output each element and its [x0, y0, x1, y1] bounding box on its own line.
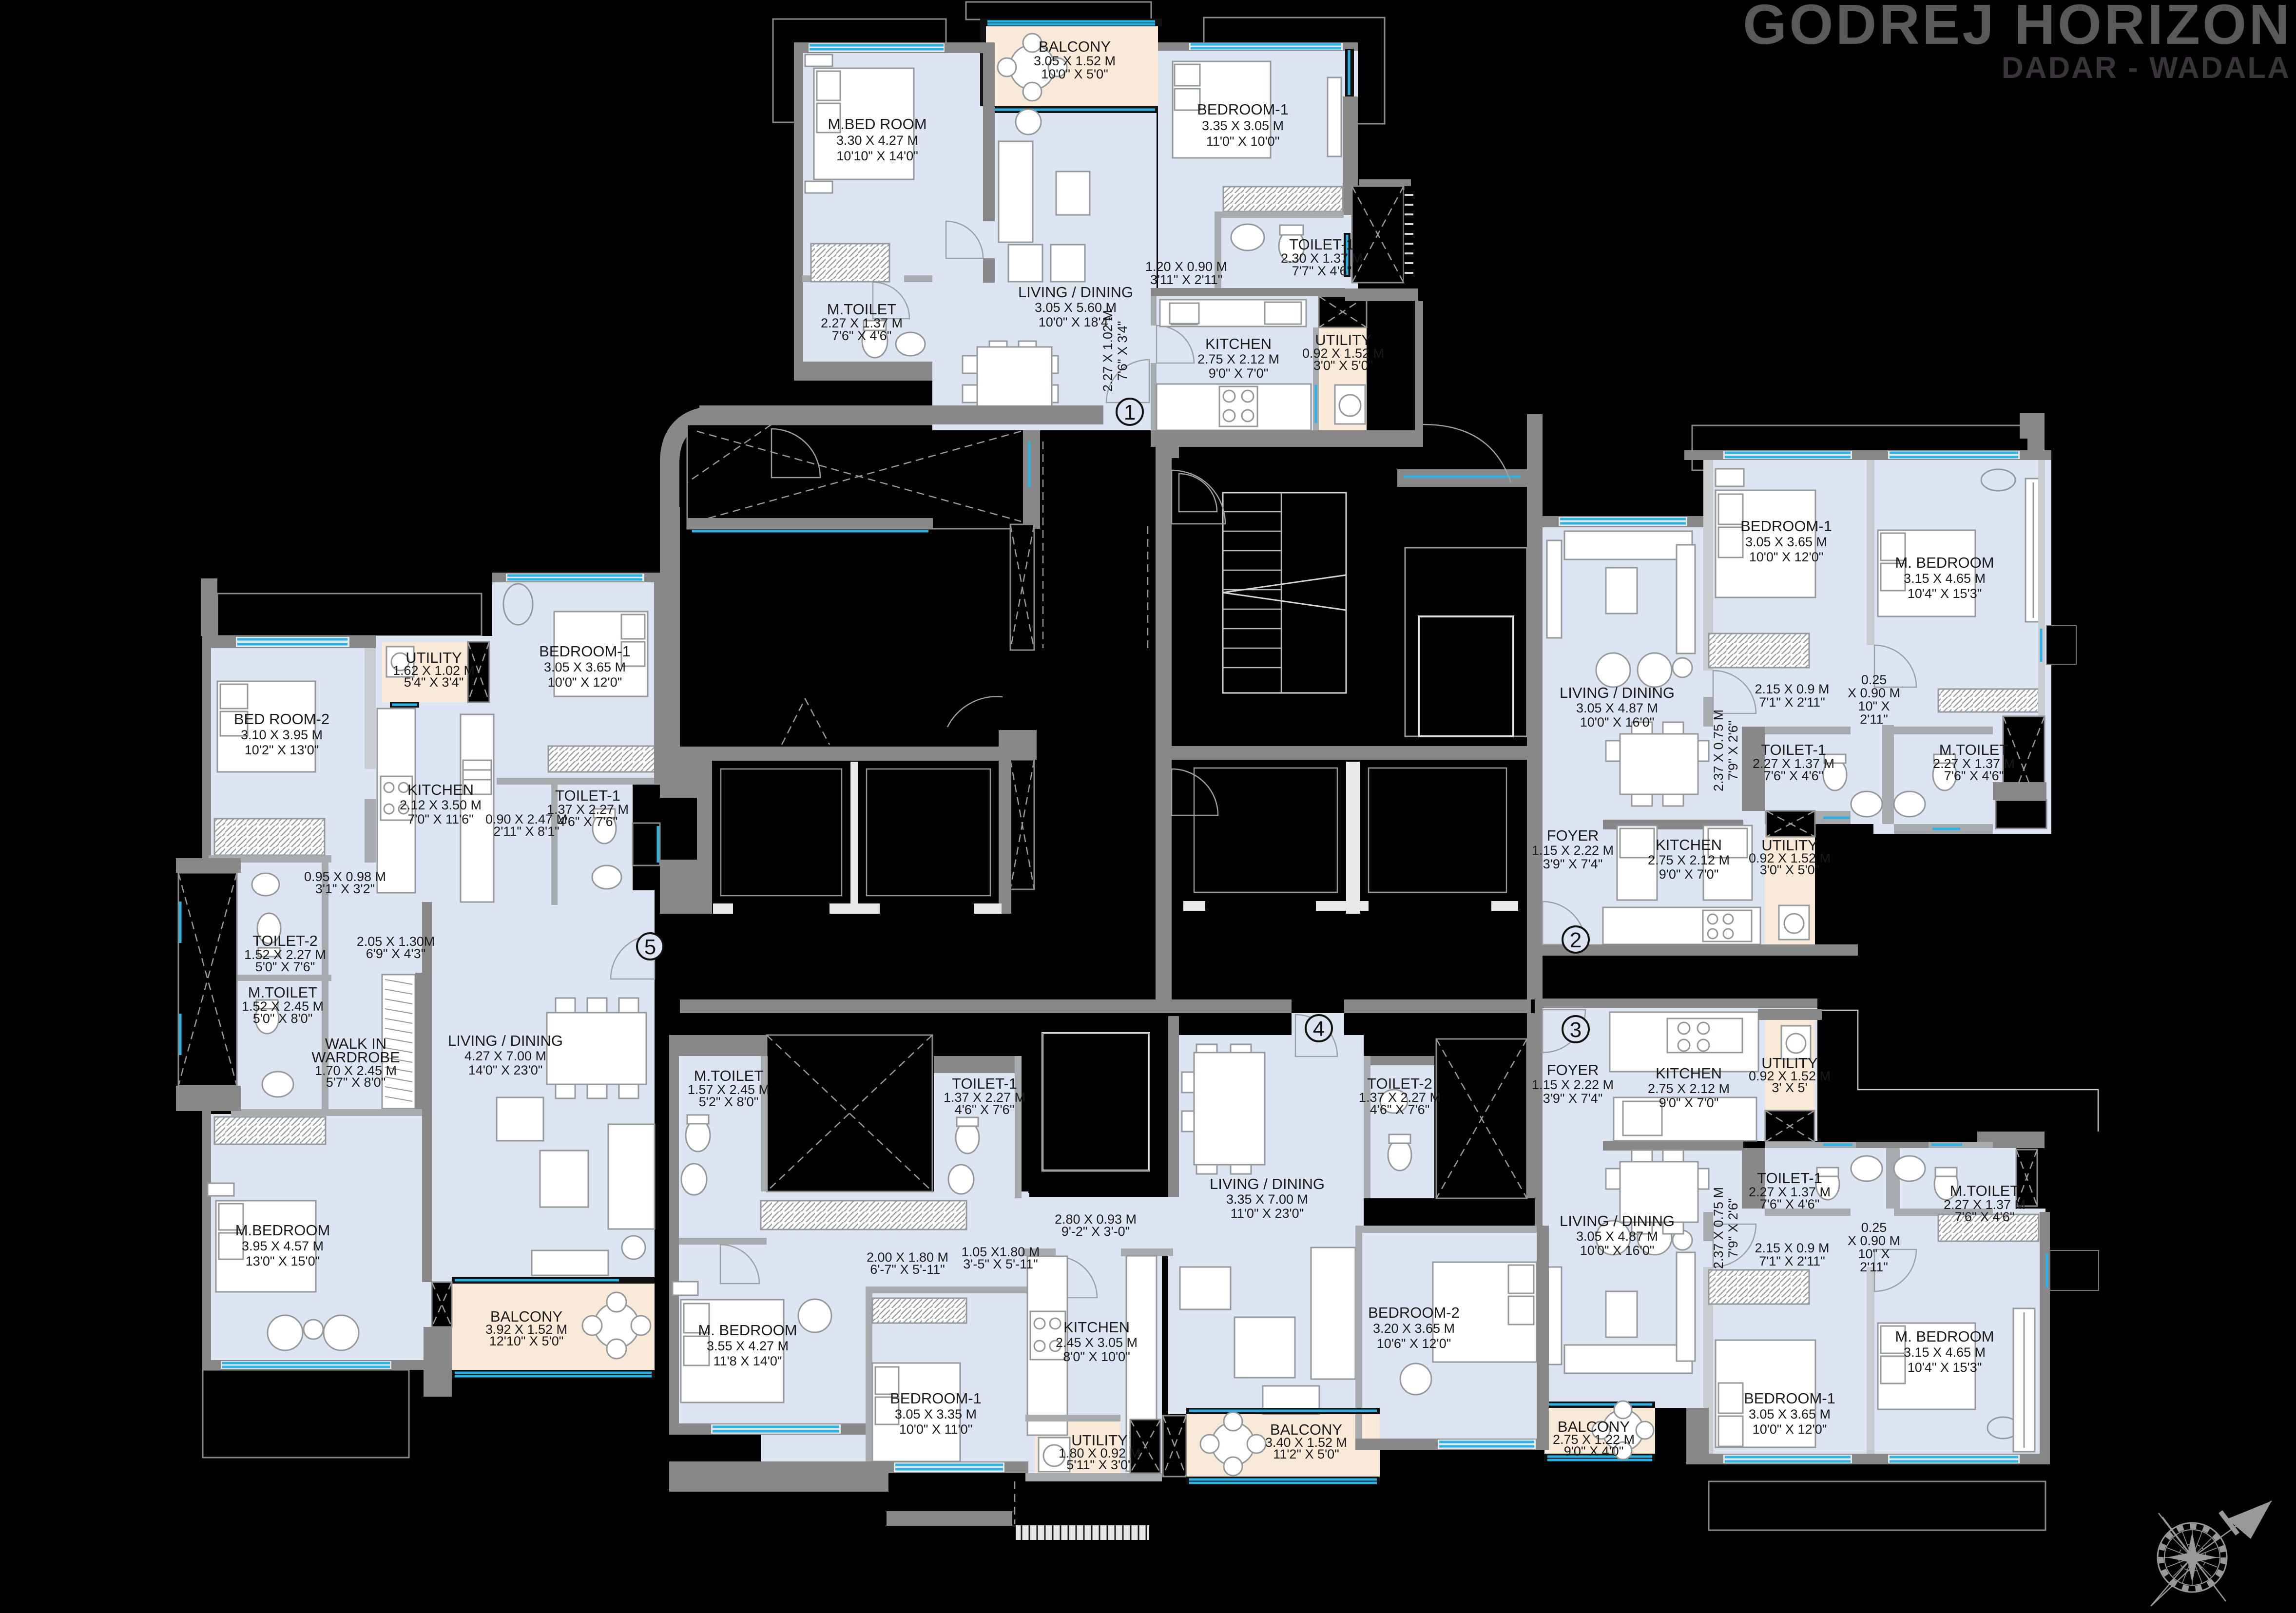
svg-text:M.TOILET: M.TOILET	[1939, 741, 2008, 758]
svg-text:0.25: 0.25	[1861, 672, 1887, 687]
svg-text:10'0" X 16'0": 10'0" X 16'0"	[1580, 1243, 1655, 1258]
svg-text:7'6" X 4'6": 7'6" X 4'6"	[1764, 768, 1824, 783]
svg-text:5'7" X 8'0": 5'7" X 8'0"	[326, 1075, 386, 1090]
svg-text:3'-5" X 5'-11": 3'-5" X 5'-11"	[963, 1257, 1038, 1271]
svg-text:GODREJ HORIZON: GODREJ HORIZON	[1743, 0, 2292, 56]
svg-text:10" X: 10" X	[1858, 1247, 1890, 1261]
svg-text:TOILET-2: TOILET-2	[1367, 1075, 1432, 1092]
svg-text:1: 1	[1124, 401, 1136, 424]
svg-text:2.45 X 3.05 M: 2.45 X 3.05 M	[1056, 1335, 1138, 1350]
svg-text:DADAR - WADALA: DADAR - WADALA	[2002, 51, 2291, 85]
svg-text:7'1" X 2'11": 7'1" X 2'11"	[1759, 695, 1825, 710]
svg-text:10'0" X 12'0": 10'0" X 12'0"	[1749, 550, 1824, 564]
svg-text:M. BEDROOM: M. BEDROOM	[698, 1322, 797, 1339]
svg-text:3.30 X 4.27 M: 3.30 X 4.27 M	[836, 133, 918, 148]
svg-text:M.TOILET: M.TOILET	[1950, 1182, 2019, 1199]
svg-text:X 0.90 M: X 0.90 M	[1848, 686, 1900, 700]
svg-text:BEDROOM-1: BEDROOM-1	[890, 1390, 982, 1407]
svg-text:13'0" X 15'0": 13'0" X 15'0"	[246, 1254, 320, 1268]
svg-text:3'0" X 5'0": 3'0" X 5'0"	[1760, 863, 1820, 877]
svg-text:3.05 X 4.87 M: 3.05 X 4.87 M	[1576, 1229, 1658, 1244]
svg-text:KITCHEN: KITCHEN	[407, 781, 474, 798]
svg-text:11'0" X 10'0": 11'0" X 10'0"	[1206, 134, 1280, 149]
svg-text:KITCHEN: KITCHEN	[1656, 1065, 1722, 1082]
svg-text:9'0" X 7'0": 9'0" X 7'0"	[1659, 867, 1719, 882]
svg-text:9'0" X 7'0": 9'0" X 7'0"	[1209, 366, 1269, 381]
svg-text:5'4" X 3'4": 5'4" X 3'4"	[404, 675, 464, 690]
svg-text:5: 5	[644, 935, 656, 959]
svg-text:4'6" X 7'6": 4'6" X 7'6"	[1370, 1102, 1430, 1117]
svg-text:BEDROOM-1: BEDROOM-1	[539, 643, 631, 660]
svg-text:9'-2" X 3'-0": 9'-2" X 3'-0"	[1061, 1224, 1130, 1239]
svg-text:2.75 X 2.12 M: 2.75 X 2.12 M	[1197, 352, 1279, 366]
svg-text:LIVING / DINING: LIVING / DINING	[1018, 284, 1133, 301]
svg-text:6'9" X 4'3": 6'9" X 4'3"	[366, 946, 426, 961]
svg-text:7'7" X 4'6": 7'7" X 4'6"	[1292, 264, 1352, 278]
svg-text:BEDROOM-1: BEDROOM-1	[1197, 101, 1289, 118]
svg-text:TOILET-2: TOILET-2	[252, 932, 318, 949]
svg-text:9'0" X 7'0": 9'0" X 7'0"	[1659, 1095, 1719, 1110]
svg-text:BALCONY: BALCONY	[1039, 38, 1111, 55]
svg-text:7'6" X 4'6": 7'6" X 4'6"	[1760, 1197, 1820, 1211]
svg-text:3'0" X 5'0": 3'0" X 5'0"	[1313, 358, 1373, 373]
svg-text:7'9" X 2'6": 7'9" X 2'6"	[1726, 721, 1740, 781]
svg-text:7'9" X 2'6": 7'9" X 2'6"	[1726, 1198, 1740, 1258]
svg-text:11'0" X 23'0": 11'0" X 23'0"	[1231, 1206, 1304, 1221]
svg-text:3.95 X 4.57 M: 3.95 X 4.57 M	[242, 1239, 324, 1253]
svg-text:10'0" X 11'0": 10'0" X 11'0"	[899, 1422, 973, 1437]
svg-text:3.15 X 4.65 M: 3.15 X 4.65 M	[1904, 571, 1986, 586]
svg-text:7'6" X 3'4": 7'6" X 3'4"	[1115, 321, 1130, 381]
svg-text:3.55 X 4.27 M: 3.55 X 4.27 M	[707, 1339, 789, 1353]
svg-text:10'0" X 5'0": 10'0" X 5'0"	[1041, 67, 1108, 81]
svg-text:4: 4	[1313, 1017, 1325, 1041]
svg-text:5'11" X 3'0": 5'11" X 3'0"	[1066, 1458, 1133, 1472]
svg-text:2.15 X 0.9 M: 2.15 X 0.9 M	[1755, 1241, 1829, 1255]
svg-text:3.20 X 3.65 M: 3.20 X 3.65 M	[1373, 1321, 1455, 1336]
svg-text:2.37 X 0.75 M: 2.37 X 0.75 M	[1711, 1187, 1726, 1269]
svg-text:3.05 X 3.65 M: 3.05 X 3.65 M	[1745, 535, 1827, 549]
svg-text:5'2" X 8'0": 5'2" X 8'0"	[699, 1095, 759, 1109]
svg-text:BEDROOM-1: BEDROOM-1	[1740, 518, 1832, 535]
svg-text:14'0" X 23'0": 14'0" X 23'0"	[468, 1063, 543, 1077]
svg-text:3: 3	[1570, 1018, 1582, 1042]
svg-text:5'0" X 7'6": 5'0" X 7'6"	[255, 960, 315, 974]
svg-text:1.20 X 0.90 M: 1.20 X 0.90 M	[1145, 259, 1227, 274]
svg-text:FOYER: FOYER	[1547, 1061, 1599, 1078]
svg-text:9'0" X 4'0": 9'0" X 4'0"	[1564, 1444, 1624, 1459]
svg-text:2.15 X 0.9 M: 2.15 X 0.9 M	[1755, 682, 1829, 696]
svg-text:3'1" X 3'2": 3'1" X 3'2"	[315, 882, 375, 896]
svg-text:M. BEDROOM: M. BEDROOM	[1895, 1328, 1994, 1345]
svg-text:2.75 X 2.12 M: 2.75 X 2.12 M	[1648, 853, 1730, 867]
svg-text:KITCHEN: KITCHEN	[1063, 1319, 1130, 1336]
svg-text:LIVING / DINING: LIVING / DINING	[1210, 1175, 1325, 1192]
svg-text:0.25: 0.25	[1861, 1220, 1887, 1235]
svg-text:10" X: 10" X	[1858, 699, 1890, 713]
svg-text:3' X 5': 3' X 5'	[1772, 1080, 1807, 1095]
svg-text:TOILET-1: TOILET-1	[1761, 741, 1826, 758]
svg-text:3.15 X 4.65 M: 3.15 X 4.65 M	[1904, 1345, 1986, 1360]
svg-text:TOILET-1: TOILET-1	[1757, 1170, 1822, 1187]
svg-text:3.05 X 3.35 M: 3.05 X 3.35 M	[895, 1407, 977, 1421]
svg-text:2.75 X 2.12 M: 2.75 X 2.12 M	[1648, 1081, 1730, 1096]
svg-text:3'11" X 2'11": 3'11" X 2'11"	[1150, 272, 1223, 287]
svg-text:7'6" X 4'6": 7'6" X 4'6"	[1955, 1210, 2015, 1224]
svg-text:M.BEDROOM: M.BEDROOM	[235, 1222, 330, 1239]
svg-text:LIVING / DINING: LIVING / DINING	[1560, 684, 1675, 701]
svg-text:LIVING / DINING: LIVING / DINING	[1560, 1212, 1675, 1229]
svg-text:10'6" X 12'0": 10'6" X 12'0"	[1377, 1336, 1451, 1351]
svg-text:BED ROOM-2: BED ROOM-2	[234, 710, 329, 728]
svg-text:4.27 X 7.00 M: 4.27 X 7.00 M	[464, 1049, 546, 1063]
svg-text:3'9" X 7'4": 3'9" X 7'4"	[1543, 1091, 1603, 1106]
svg-text:10'10" X 14'0": 10'10" X 14'0"	[836, 149, 918, 163]
svg-text:5'0" X 8'0": 5'0" X 8'0"	[253, 1011, 313, 1026]
svg-text:12'10" X 5'0": 12'10" X 5'0"	[489, 1334, 564, 1348]
svg-text:2'11": 2'11"	[1860, 1260, 1888, 1274]
svg-text:3'9" X 7'4": 3'9" X 7'4"	[1543, 857, 1603, 871]
svg-text:TOILET-1: TOILET-1	[1289, 236, 1354, 253]
svg-text:2.37 X 0.75 M: 2.37 X 0.75 M	[1711, 710, 1726, 791]
svg-text:2: 2	[1570, 928, 1582, 952]
svg-text:8'0" X 10'0": 8'0" X 10'0"	[1063, 1349, 1130, 1364]
svg-text:M.TOILET: M.TOILET	[694, 1067, 763, 1084]
svg-text:FOYER: FOYER	[1547, 827, 1599, 844]
svg-text:6'-7" X 5'-11": 6'-7" X 5'-11"	[870, 1262, 945, 1277]
svg-text:10'4" X 15'3": 10'4" X 15'3"	[1908, 1360, 1982, 1375]
svg-text:3.05 X 3.65 M: 3.05 X 3.65 M	[544, 660, 626, 674]
svg-text:2.27 X 1.02 M: 2.27 X 1.02 M	[1100, 310, 1115, 392]
svg-text:3.05 X 1.52 M: 3.05 X 1.52 M	[1034, 54, 1116, 68]
svg-text:1.15 X 2.22 M: 1.15 X 2.22 M	[1532, 843, 1614, 858]
svg-text:4'6" X 7'6": 4'6" X 7'6"	[955, 1102, 1015, 1117]
svg-text:2.12 X 3.50 M: 2.12 X 3.50 M	[400, 798, 482, 812]
svg-text:1.15 X 2.22 M: 1.15 X 2.22 M	[1532, 1077, 1614, 1092]
svg-text:10'0" X 16'0": 10'0" X 16'0"	[1580, 715, 1655, 730]
svg-text:11'8 X 14'0": 11'8 X 14'0"	[714, 1354, 782, 1368]
svg-text:7'6" X 4'6": 7'6" X 4'6"	[1944, 768, 2004, 783]
svg-text:7'6" X 4'6": 7'6" X 4'6"	[832, 328, 892, 343]
svg-text:3.35 X 3.05 M: 3.35 X 3.05 M	[1202, 118, 1284, 133]
svg-text:KITCHEN: KITCHEN	[1205, 335, 1272, 352]
svg-text:TOILET-1: TOILET-1	[555, 787, 620, 804]
svg-text:BEDROOM-1: BEDROOM-1	[1744, 1390, 1835, 1407]
svg-text:2'11": 2'11"	[1860, 712, 1888, 727]
svg-text:3.35 X 7.00 M: 3.35 X 7.00 M	[1226, 1192, 1308, 1207]
svg-text:3.05 X 4.87 M: 3.05 X 4.87 M	[1576, 701, 1658, 715]
svg-text:M.BED ROOM: M.BED ROOM	[828, 115, 926, 133]
svg-text:3.05 X 3.65 M: 3.05 X 3.65 M	[1749, 1407, 1831, 1421]
svg-text:M. BEDROOM: M. BEDROOM	[1895, 554, 1994, 571]
svg-text:3.10 X 3.95 M: 3.10 X 3.95 M	[241, 728, 323, 742]
svg-text:X 0.90 M: X 0.90 M	[1848, 1233, 1900, 1248]
svg-text:LIVING / DINING: LIVING / DINING	[448, 1032, 563, 1049]
svg-text:10'0" X 12'0": 10'0" X 12'0"	[548, 675, 622, 690]
svg-text:7'1" X 2'11": 7'1" X 2'11"	[1759, 1254, 1825, 1268]
svg-text:TOILET-1: TOILET-1	[952, 1075, 1017, 1092]
svg-text:BEDROOM-2: BEDROOM-2	[1368, 1304, 1460, 1321]
svg-text:M.TOILET: M.TOILET	[827, 301, 896, 318]
svg-text:11'2" X 5'0": 11'2" X 5'0"	[1273, 1447, 1339, 1461]
svg-text:M.TOILET: M.TOILET	[248, 984, 317, 1001]
svg-text:10'2" X 13'0": 10'2" X 13'0"	[245, 743, 319, 757]
svg-text:10'0" X 12'0": 10'0" X 12'0"	[1753, 1422, 1827, 1437]
svg-text:2'11" X 8'1": 2'11" X 8'1"	[493, 824, 560, 839]
svg-text:7'0" X 11'6": 7'0" X 11'6"	[407, 812, 474, 826]
svg-text:KITCHEN: KITCHEN	[1656, 836, 1722, 853]
svg-text:10'4" X 15'3": 10'4" X 15'3"	[1908, 586, 1982, 601]
